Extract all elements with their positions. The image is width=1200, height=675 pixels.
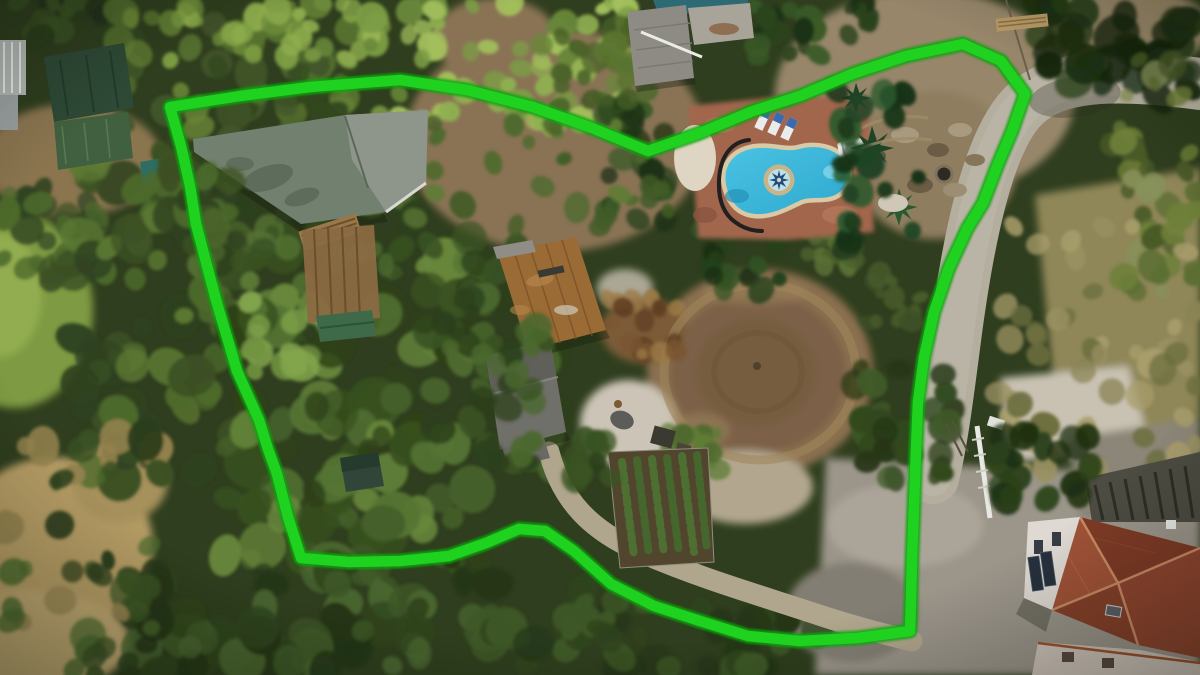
aerial-photo (0, 0, 1200, 675)
aerial-photo-stage (0, 0, 1200, 675)
